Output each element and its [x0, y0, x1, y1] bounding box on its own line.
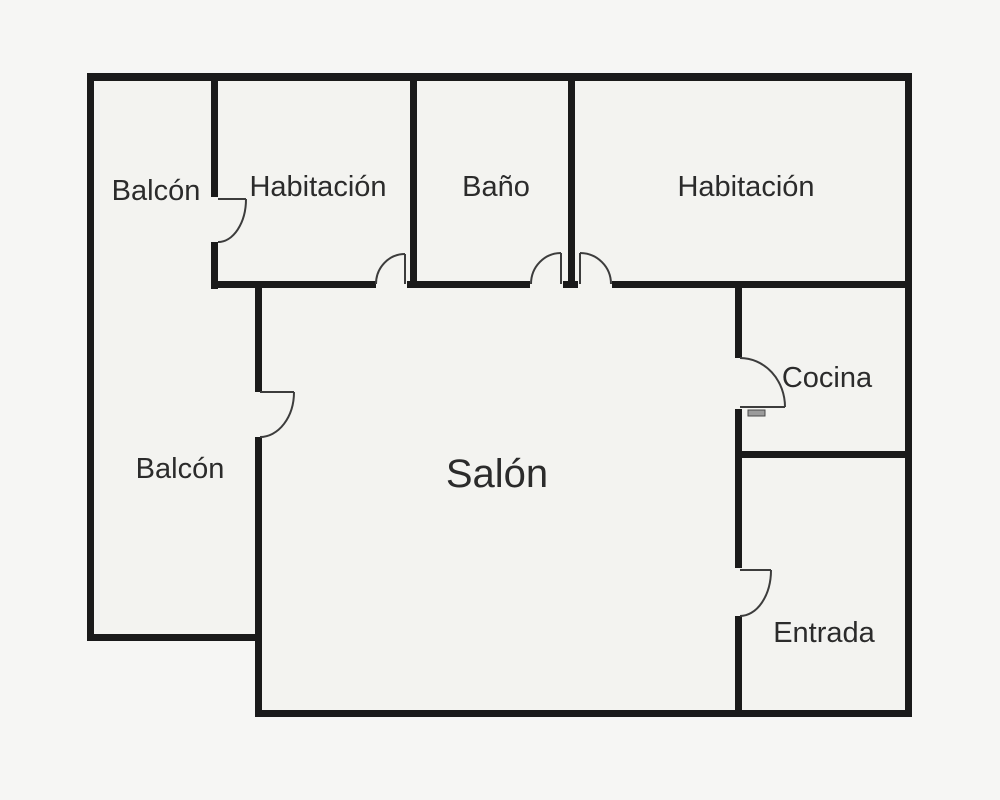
floor-plan-canvas: Balcón Habitación Baño Habitación Cocina… [0, 0, 1000, 800]
wall-bano-right [568, 73, 575, 288]
wall-toprooms-bottom-seg4 [612, 281, 912, 288]
label-balcon-top: Balcón [112, 175, 201, 207]
wall-toprooms-bottom-seg1 [211, 281, 376, 288]
wall-right-divider-lower [735, 616, 742, 717]
wall-right-divider-middle [735, 409, 742, 568]
wall-outer-top [87, 73, 912, 81]
wall-right-divider-upper [735, 281, 742, 358]
wall-salon-left-lower [255, 437, 262, 717]
wall-cocina-bottom [735, 451, 912, 458]
room-entrada [742, 458, 905, 710]
wall-salon-left-upper [255, 281, 262, 392]
label-balcon-left: Balcón [136, 453, 225, 485]
label-bano: Baño [462, 171, 530, 203]
floor-plan: Balcón Habitación Baño Habitación Cocina… [0, 0, 1000, 800]
wall-balcony-bottom [87, 634, 262, 641]
label-cocina: Cocina [782, 362, 873, 394]
wall-bano-left [410, 73, 417, 288]
wall-outer-right [905, 73, 912, 717]
label-habitacion-right: Habitación [677, 171, 814, 203]
wall-toprooms-bottom-seg2 [407, 281, 530, 288]
wall-balcon-habitacion-upper [211, 73, 218, 197]
wall-outer-left [87, 73, 94, 641]
label-entrada: Entrada [773, 617, 875, 649]
door-handle-cocina [748, 410, 765, 416]
label-salon: Salón [446, 452, 548, 496]
label-habitacion-left: Habitación [249, 171, 386, 203]
room-salon [262, 289, 735, 710]
wall-outer-bottom [255, 710, 912, 717]
